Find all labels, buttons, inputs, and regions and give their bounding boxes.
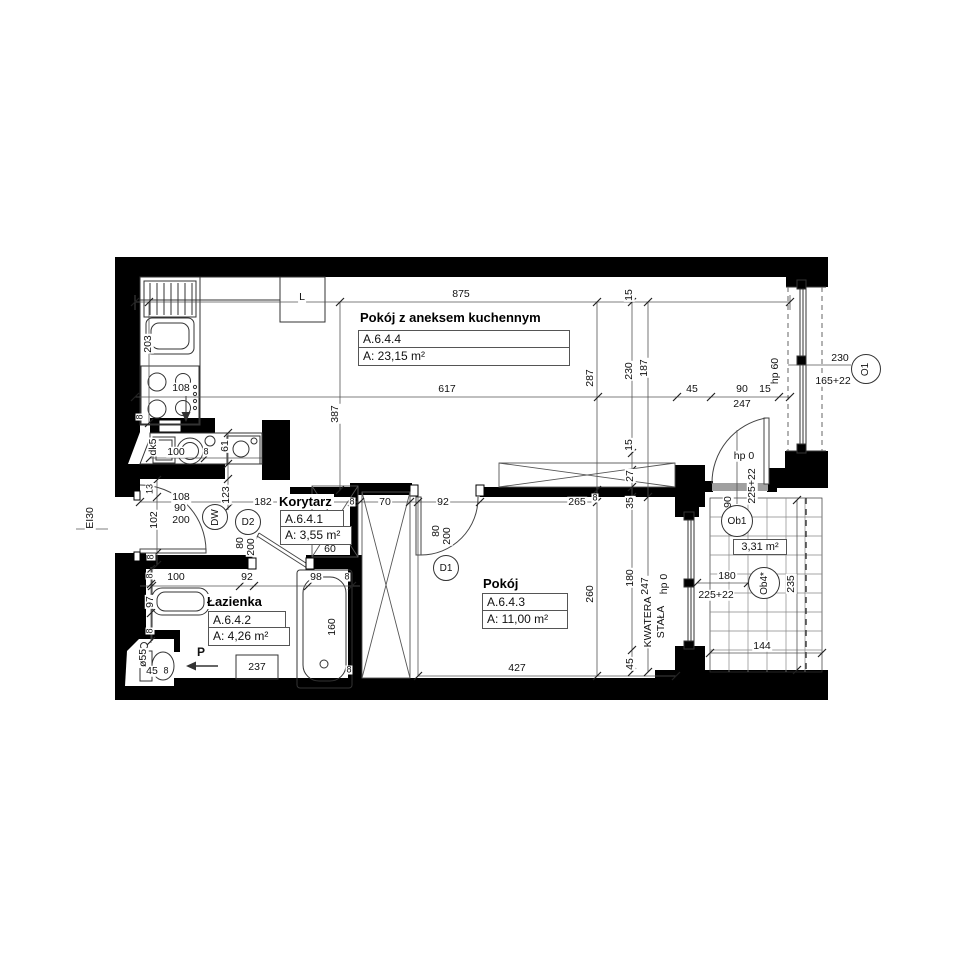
- balcony-area-label: 3,31 m²: [733, 539, 787, 555]
- dim-247-top: 247: [732, 399, 752, 410]
- dim-875: 875: [451, 289, 471, 300]
- room-title-hall: Korytarz: [277, 494, 334, 509]
- dim-235: 235: [786, 574, 797, 594]
- room-title-room: Pokój: [481, 576, 520, 591]
- dim-61: 61: [220, 439, 231, 453]
- dim-15-top: 15: [758, 384, 772, 395]
- dim-230-o1: 230: [830, 353, 850, 364]
- dim-8-tub: 8: [345, 666, 352, 675]
- dim-247-right: 247: [640, 576, 651, 596]
- dim-225-22-balc-b: 225+22: [697, 590, 734, 601]
- dim-97: 97: [145, 595, 156, 609]
- balcony-marker-ob1: Ob1: [721, 505, 753, 537]
- fire-rating-label: EI30: [85, 506, 96, 530]
- dim-182: 182: [253, 497, 273, 508]
- door-marker-d2: D2: [235, 509, 261, 535]
- dim-108-entry: 108: [171, 492, 191, 503]
- dim-8-265: 8: [591, 494, 598, 503]
- dim-200-d1: 200: [442, 526, 453, 546]
- dim-8-kitchen: 8: [136, 413, 145, 420]
- dim-15-topright: 15: [624, 288, 635, 302]
- dim-287: 287: [585, 368, 596, 388]
- dim-8-entry: 8: [147, 553, 156, 560]
- dim-123: 123: [221, 485, 232, 505]
- dim-27: 27: [625, 469, 636, 483]
- dim-180-balc: 180: [717, 571, 737, 582]
- door-marker-dw: DW: [202, 504, 228, 530]
- dim-8-hall: 8: [348, 498, 355, 507]
- dim-hp60: hp 60: [770, 357, 781, 385]
- dim-80-d1: 80: [431, 524, 442, 538]
- dim-70: 70: [378, 497, 392, 508]
- dim-108-kitchen: 108: [171, 383, 191, 394]
- dim-45-top: 45: [685, 384, 699, 395]
- dim-160: 160: [327, 617, 338, 637]
- dim-100-bath: 100: [166, 572, 186, 583]
- dim-8-wc: 8: [162, 667, 169, 676]
- entry-arrow-label: P: [196, 646, 206, 658]
- dim-hp0-door: hp 0: [733, 451, 755, 462]
- dim-617: 617: [437, 384, 457, 395]
- fixed-glazing-label-1: KWATERA: [643, 596, 654, 649]
- dim-92-d1: 92: [436, 497, 450, 508]
- fridge-label: L: [298, 292, 306, 303]
- dim-o55: ø55: [138, 648, 149, 668]
- dim-60: 60: [323, 544, 337, 555]
- dim-8-bath: 8: [343, 573, 350, 582]
- dim-8-basin-bot: 8: [146, 627, 155, 634]
- dim-15-mid: 15: [624, 438, 635, 452]
- dim-13: 13: [146, 483, 155, 495]
- dim-203: 203: [143, 334, 154, 354]
- balcony-marker-ob4: Ob4*: [748, 567, 780, 599]
- dim-8-alcove: 8: [202, 448, 209, 457]
- door-marker-d1: D1: [433, 555, 459, 581]
- dim-90-top: 90: [735, 384, 749, 395]
- dim-35: 35: [625, 496, 636, 510]
- dim-230-right: 230: [624, 361, 635, 381]
- dim-80-d2: 80: [235, 536, 246, 550]
- room-title-bath: Łazienka: [205, 594, 264, 609]
- dim-180-right: 180: [625, 568, 636, 588]
- dim-225-22-balc-a: 225+22: [747, 467, 758, 504]
- dim-hp0-fixed: hp 0: [659, 573, 670, 595]
- dim-102: 102: [149, 510, 160, 530]
- room-area-bath: A: 4,26 m²: [208, 627, 290, 646]
- dim-187-right: 187: [639, 358, 650, 378]
- dim-165-22-o1: 165+22: [814, 376, 851, 387]
- dim-260: 260: [585, 584, 596, 604]
- dim-265: 265: [567, 497, 587, 508]
- dim-144: 144: [752, 641, 772, 652]
- fixed-glazing-label-2: STAŁA: [656, 605, 667, 639]
- floor-plan: 875617459015247hp 0230165+22L10810081089…: [0, 0, 960, 960]
- dim-92-bath: 92: [240, 572, 254, 583]
- window-marker-o1: O1: [851, 354, 881, 384]
- dimension-labels-layer: 875617459015247hp 0230165+22L10810081089…: [0, 0, 960, 960]
- dim-387: 387: [330, 404, 341, 424]
- shaft-label-dk5: dk5: [148, 438, 159, 457]
- room-title-living: Pokój z aneksem kuchennym: [358, 310, 543, 325]
- room-area-room: A: 11,00 m²: [482, 610, 568, 629]
- room-area-living: A: 23,15 m²: [358, 347, 570, 366]
- dim-200-d2: 200: [246, 537, 257, 557]
- room-area-hall: A: 3,55 m²: [280, 526, 352, 545]
- dim-90-entry: 90: [173, 503, 187, 514]
- appliance-237: 237: [247, 662, 267, 673]
- dim-98-bath: 98: [309, 572, 323, 583]
- dim-427: 427: [507, 663, 527, 674]
- dim-100-alcove: 100: [166, 447, 186, 458]
- dim-45-botright: 45: [625, 657, 636, 671]
- dim-8-basin-top: 8: [146, 572, 155, 579]
- dim-200-entry: 200: [171, 515, 191, 526]
